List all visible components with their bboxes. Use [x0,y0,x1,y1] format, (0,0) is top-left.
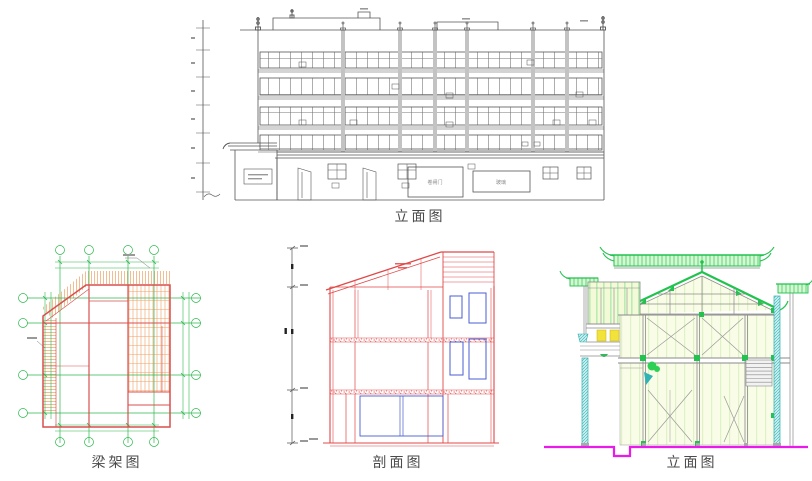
left-annex [223,143,277,200]
caption-beam-plan: 梁架图 [57,452,177,472]
elevation-dimension-line [191,20,220,200]
caption-top-elevation: 立面图 [360,206,480,226]
cad-sheet: 卷闸门 玻璃 [0,0,812,481]
roof-parapet [240,8,604,30]
section-dimension-line [285,245,309,445]
section-windows [360,293,486,436]
storefront-sign-2: 玻璃 [496,179,506,186]
storefront-sign-1: 卷闸门 [427,179,442,186]
ground-level-mark [309,438,318,440]
window-bands [258,52,604,152]
timber-elevation-drawing [540,238,812,463]
roof-finials [256,9,606,30]
caption-section: 剖面图 [338,452,458,472]
right-eave-roof [776,277,812,447]
top-elevation-drawing: 卷闸门 玻璃 [180,0,650,235]
ridge-roof [600,247,774,268]
section-structure [323,252,499,446]
storefront [235,158,604,200]
main-frame [618,308,790,446]
beam-frame-plan-drawing [15,238,230,465]
caption-right-elevation: 立面图 [632,452,752,472]
section-roof [326,252,494,294]
stairs [746,360,772,386]
section-drawing [283,238,518,456]
storefront-canopy [275,152,604,158]
